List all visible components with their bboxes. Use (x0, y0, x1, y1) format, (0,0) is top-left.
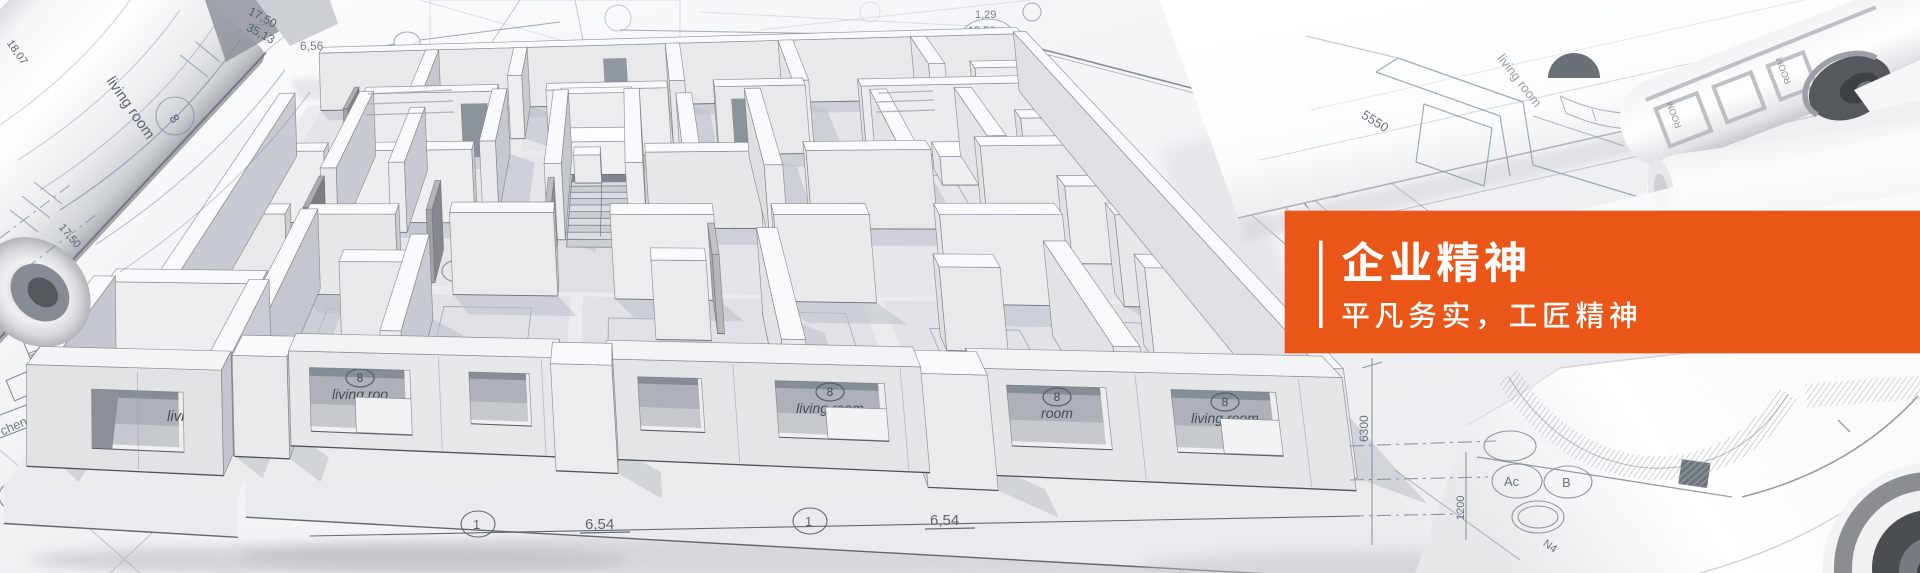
svg-text:6,54: 6,54 (930, 512, 959, 529)
svg-text:Ac: Ac (1504, 474, 1520, 489)
svg-text:1200: 1200 (1455, 496, 1467, 520)
svg-text:6,54: 6,54 (585, 516, 614, 533)
svg-text:room: room (1041, 405, 1073, 421)
svg-text:1: 1 (805, 514, 812, 529)
svg-text:8: 8 (357, 371, 364, 385)
svg-text:8: 8 (827, 385, 834, 399)
svg-text:1: 1 (473, 517, 480, 532)
svg-text:6300: 6300 (1357, 415, 1371, 442)
svg-text:8: 8 (1054, 390, 1061, 404)
svg-text:B: B (1562, 475, 1571, 490)
svg-text:8: 8 (1222, 395, 1229, 409)
